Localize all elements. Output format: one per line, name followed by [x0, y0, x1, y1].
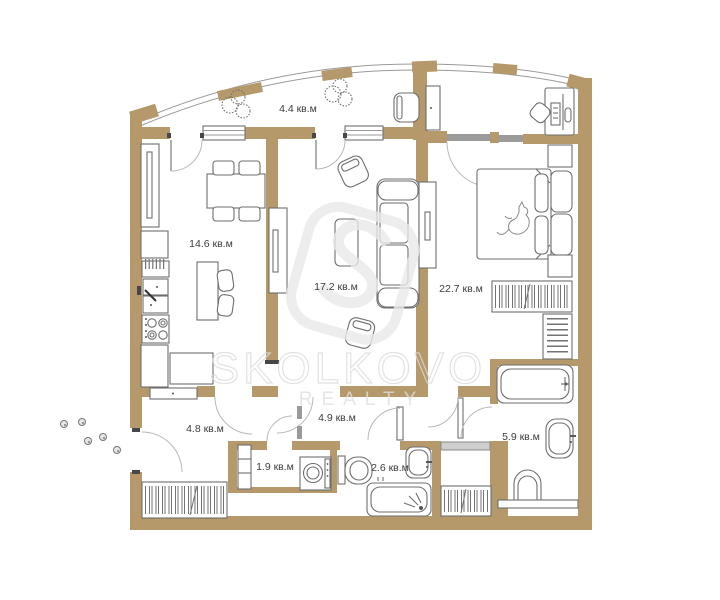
shelf-unit: [238, 445, 251, 489]
room-label-living: 17.2 кв.м: [314, 281, 358, 293]
bar-stool: [217, 294, 235, 317]
kitchen-counter: [170, 353, 213, 384]
stove: [142, 315, 169, 343]
bedroom-wardrobe: [419, 182, 436, 268]
window: [345, 126, 383, 140]
closet-niche: [441, 442, 491, 516]
headboard: [551, 171, 572, 212]
headboard: [551, 214, 572, 255]
kitchen-tall-cabinet: [141, 144, 159, 227]
watermark: SKOLKOVO REALTY: [210, 200, 487, 410]
watermark-subtitle: REALTY: [299, 389, 426, 410]
bedroom-window-band: [499, 135, 523, 142]
dining-chair: [239, 161, 260, 175]
wc-items: [338, 447, 432, 516]
shrub: [61, 421, 68, 428]
wash-basin: [406, 447, 432, 478]
pillow: [535, 216, 548, 254]
room-label-wc: 2.6 кв.м: [371, 462, 409, 474]
floor-plan: SKOLKOVO REALTY 4.4 кв.м 14.6 кв.м 17.2 …: [0, 0, 720, 600]
jamb-tick: [167, 133, 171, 138]
dining-table: [207, 174, 265, 208]
outer-wall-left: [130, 472, 142, 516]
kitchen-balcony-door-arc: [171, 140, 202, 171]
outer-wall-left: [130, 112, 142, 428]
glazing-post: [412, 66, 437, 67]
bathroom-door-arc: [461, 407, 492, 438]
bedroom-window-band: [447, 134, 490, 141]
dining-chair: [213, 207, 234, 221]
outer-wall-right: [578, 78, 592, 530]
closet-hangers: [441, 486, 491, 516]
balcony-glazing-curve: [131, 64, 590, 126]
room-label-storage: 1.9 кв.м: [256, 461, 294, 473]
nightstand: [548, 145, 572, 167]
armchair: [336, 154, 371, 189]
room-label-hallway: 4.8 кв.м: [186, 423, 224, 435]
balcony-door-leaf: [426, 86, 440, 130]
room-label-bedroom: 22.7 кв.м: [439, 283, 483, 295]
top-wall: [490, 132, 499, 143]
dining-chair: [239, 207, 260, 221]
plant: [325, 79, 352, 106]
bedroom-door-arc: [428, 397, 458, 427]
glazing-post: [493, 68, 517, 70]
pillow: [535, 174, 548, 212]
entrance-door-arc: [142, 432, 182, 472]
balcony-chair: [394, 93, 419, 122]
nightstand: [548, 255, 572, 277]
balcony-items: [222, 79, 574, 135]
shrub: [100, 434, 107, 441]
kitchen-cabinet: [141, 345, 168, 387]
console: [150, 388, 197, 399]
shrub: [79, 419, 86, 426]
jamb-tick: [132, 428, 140, 432]
room-label-corridor: 4.9 кв.м: [318, 412, 356, 424]
hallway-items: [61, 388, 228, 518]
bed: [477, 169, 551, 259]
hall-wardrobe: [142, 482, 227, 518]
jamb-tick: [132, 470, 140, 474]
bedroom-items: [419, 145, 572, 359]
storage-wall: [228, 441, 237, 493]
shower-bathtub: [367, 477, 431, 516]
top-wall: [428, 131, 447, 143]
top-wall: [142, 127, 170, 139]
hanger-wardrobe: [492, 281, 572, 312]
bath-toilet: [514, 470, 541, 501]
dish-rack: [142, 261, 169, 277]
wc-right-wall: [432, 441, 441, 516]
top-wall: [245, 127, 315, 139]
bath-ledge: [498, 500, 578, 508]
jamb-tick: [343, 133, 347, 138]
toilet: [338, 456, 372, 484]
floor-plan-drawing: SKOLKOVO REALTY 4.4 кв.м 14.6 кв.м 17.2 …: [0, 0, 720, 600]
washing-machine: [300, 457, 331, 490]
glazing-post: [322, 72, 352, 76]
storage-door-arc: [267, 416, 292, 441]
door-leaf: [397, 407, 403, 440]
living-bedroom-wall: [416, 139, 428, 182]
room-labels: 4.4 кв.м 14.6 кв.м 17.2 кв.м 22.7 кв.м 4…: [186, 103, 540, 474]
kitchen-cabinet: [141, 231, 168, 258]
room-label-bathroom: 5.9 кв.м: [502, 431, 540, 443]
room-label-balcony: 4.4 кв.м: [279, 103, 317, 115]
shrub: [114, 447, 121, 454]
dining-chair: [213, 161, 234, 175]
watermark-name: SKOLKOVO: [210, 344, 487, 393]
kitchen-hall-wall: [142, 386, 150, 397]
bar-stool: [217, 269, 235, 292]
bath-sink: [546, 419, 576, 458]
shrub: [85, 438, 92, 445]
bathtub: [497, 365, 573, 403]
closet-shelf: [441, 442, 490, 450]
glazing-post: [218, 87, 262, 96]
tv-stand: [269, 208, 287, 293]
door-leaf: [458, 398, 463, 438]
shrubs: [61, 419, 121, 454]
kitchen-island: [197, 262, 218, 320]
window: [203, 126, 245, 140]
chest-of-drawers: [543, 314, 572, 359]
room-label-kitchen: 14.6 кв.м: [189, 238, 233, 250]
jamb-tick: [200, 133, 204, 138]
door-frame: [297, 426, 302, 439]
wc-door-arc: [368, 408, 400, 440]
jamb-tick: [312, 133, 316, 138]
